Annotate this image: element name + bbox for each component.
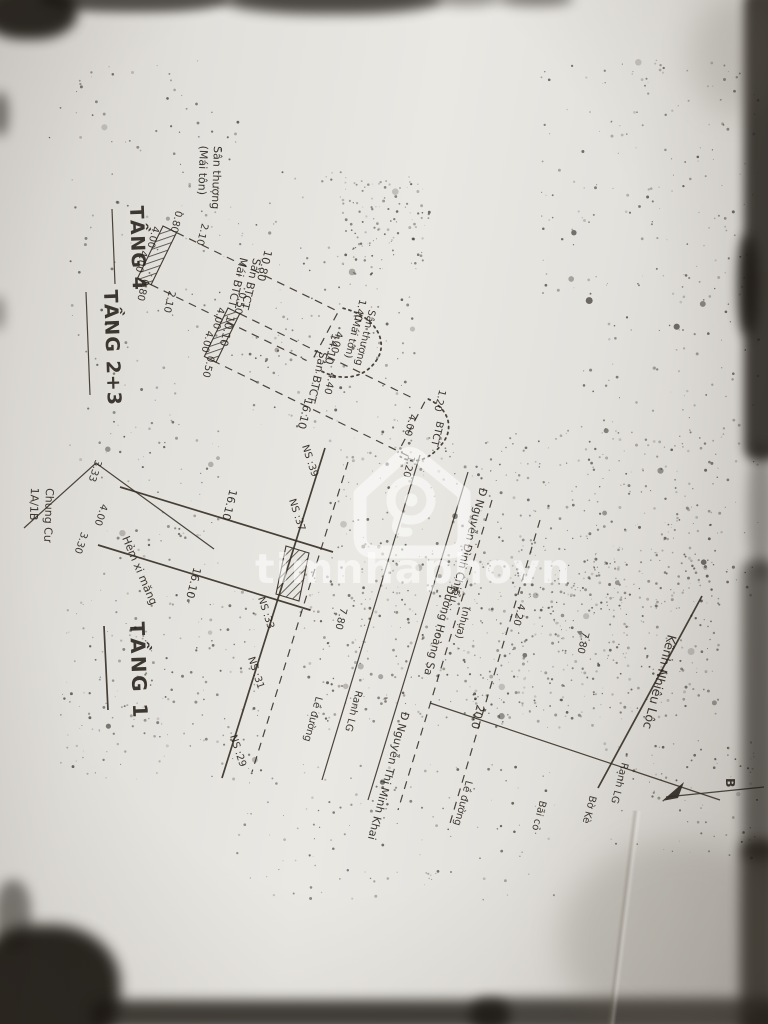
photocopy-speckle-noise xyxy=(49,59,760,900)
dim-label: 1.20 xyxy=(431,388,447,412)
floor23-title-underline xyxy=(86,292,90,395)
floor4-roof-note: Sân thượng (Mái tôn) xyxy=(195,145,224,213)
road-boundary-label: Ranh LG xyxy=(608,761,630,804)
grass-label: Bãi cỏ xyxy=(529,799,549,832)
apartment-block-label: Chung Cư 1A/1B xyxy=(26,487,56,545)
neighbor-label: NS :31 xyxy=(245,656,266,691)
floor4-terrace-label: Sân thượng (Mái tôn) xyxy=(340,306,378,371)
floor4-title-underline xyxy=(112,209,115,284)
floor1-title-smear xyxy=(98,630,101,702)
dim-label: 4.00 xyxy=(92,502,109,527)
dim-label: 7.80 xyxy=(574,630,590,654)
floor4-stair-notch xyxy=(174,238,195,256)
dim-label: 3.30 xyxy=(72,530,89,555)
dim-label: 16.10 xyxy=(219,488,239,522)
subject-house-marker xyxy=(276,546,309,601)
dim-label: 2.10 xyxy=(194,222,210,246)
floor23-title: TẦNG 2+3 xyxy=(99,289,129,406)
dim-label: 16.10 xyxy=(183,566,203,600)
dim-label: 3.33 xyxy=(86,458,103,483)
dim-label: 7.80 xyxy=(332,606,348,630)
dim-label: 4.00 xyxy=(402,413,418,437)
sidewalk-label: Lề đường xyxy=(301,695,325,743)
road-boundary-label: Ranh LG xyxy=(342,689,364,732)
alley-label: Hẻm xi măng xyxy=(119,534,160,607)
dim-label: 2.10 xyxy=(161,290,177,314)
plan-ink-layer: Sân thượng (Mái tôn) TẦNG 4 0.80 2.10 4.… xyxy=(0,0,768,1024)
north-label: B xyxy=(723,778,738,788)
floor4-plan: 0.80 2.10 4.00 4.00 10.80 Sàn BTCT Mái B… xyxy=(116,198,400,411)
floor1-title-underline xyxy=(104,626,108,710)
dim-label: 0.50 xyxy=(200,354,216,378)
street-name-label: Đ Nguyễn Thị Minh Khai xyxy=(365,710,412,841)
dim-label: 4.20 xyxy=(510,602,526,626)
photographed-site-plan: Sân thượng (Mái tôn) TẦNG 4 0.80 2.10 4.… xyxy=(0,0,768,1024)
sidewalk-label: Lề đường xyxy=(451,779,475,827)
neighbor-label: NS :39 xyxy=(299,444,320,479)
embankment-label: Bờ Kè xyxy=(580,794,599,825)
dim-label: 0.80 xyxy=(168,209,184,233)
street-name-label: Đường Hoàng Sa xyxy=(421,584,458,677)
